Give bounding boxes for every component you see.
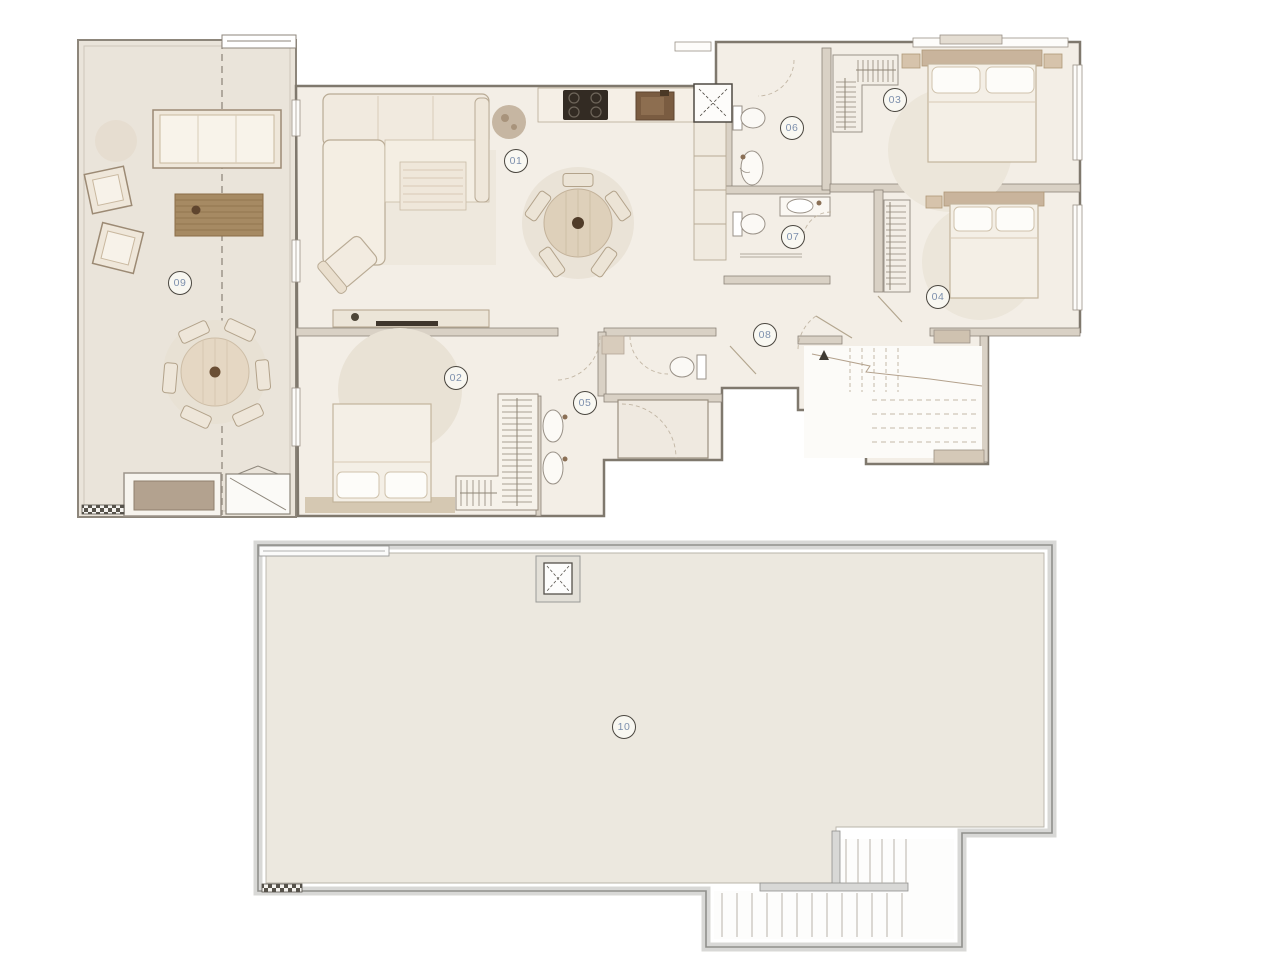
threshold-hatch bbox=[262, 884, 302, 892]
double-bed bbox=[333, 404, 431, 502]
room-label-text: 06 bbox=[786, 122, 799, 134]
tap bbox=[563, 415, 568, 420]
wall bbox=[604, 328, 716, 336]
shaft-box bbox=[602, 336, 624, 354]
room-label-04: 04 bbox=[926, 285, 950, 309]
threshold-cabinet bbox=[934, 330, 970, 343]
double-bed bbox=[950, 204, 1038, 298]
room-label-text: 01 bbox=[510, 155, 523, 167]
room-label-07: 07 bbox=[781, 225, 805, 249]
room-label-06: 06 bbox=[780, 116, 804, 140]
window bbox=[675, 42, 711, 51]
deck-coffee-table bbox=[175, 194, 263, 236]
room-label-text: 08 bbox=[759, 329, 772, 341]
room-label-09: 09 bbox=[168, 271, 192, 295]
sun-lounger bbox=[153, 110, 281, 168]
round-pouf bbox=[95, 120, 137, 162]
storage-room bbox=[618, 400, 708, 458]
tap bbox=[817, 201, 822, 206]
window bbox=[292, 388, 300, 446]
tap bbox=[563, 457, 568, 462]
planter-box bbox=[124, 473, 221, 516]
pillow bbox=[986, 67, 1034, 93]
window bbox=[913, 35, 1068, 47]
room-label-05: 05 bbox=[573, 391, 597, 415]
wall bbox=[760, 883, 908, 891]
toilet bbox=[733, 212, 765, 236]
floorplan-canvas: 01 02 03 04 05 06 07 08 09 10 bbox=[0, 0, 1280, 960]
toilet bbox=[670, 355, 706, 379]
pillow bbox=[932, 67, 980, 93]
plant-glyph bbox=[192, 206, 201, 215]
shaft-skylight bbox=[694, 84, 732, 122]
room-label-01: 01 bbox=[504, 149, 528, 173]
room-label-text: 04 bbox=[932, 291, 945, 303]
faucet bbox=[660, 90, 669, 96]
room-label-text: 09 bbox=[174, 277, 187, 289]
pillow bbox=[996, 207, 1034, 231]
tall-cabinet bbox=[694, 122, 726, 260]
centerpiece bbox=[210, 367, 221, 378]
nightstand bbox=[926, 196, 942, 208]
window bbox=[1073, 205, 1082, 310]
wall bbox=[822, 48, 831, 190]
chair bbox=[162, 362, 178, 393]
main-level-plan bbox=[78, 35, 1082, 517]
roof-level-plan bbox=[258, 545, 1052, 947]
dining-set bbox=[522, 167, 634, 279]
terrace-chair bbox=[84, 166, 131, 213]
double-bed bbox=[928, 64, 1036, 162]
window bbox=[292, 100, 300, 136]
pillow bbox=[954, 207, 992, 231]
tap bbox=[741, 155, 746, 160]
roof-skylight bbox=[536, 556, 580, 602]
pouf bbox=[492, 105, 526, 139]
room-label-text: 10 bbox=[618, 721, 631, 733]
room-label-02: 02 bbox=[444, 366, 468, 390]
wall bbox=[832, 831, 840, 887]
nightstand bbox=[1044, 54, 1062, 68]
window bbox=[1073, 65, 1082, 160]
room-label-text: 07 bbox=[787, 231, 800, 243]
roof-balustrade bbox=[259, 546, 389, 556]
terrace-sliding-door bbox=[222, 35, 296, 48]
wall bbox=[724, 276, 830, 284]
room-label-08: 08 bbox=[753, 323, 777, 347]
threshold-hatch bbox=[82, 505, 124, 514]
roof-floor bbox=[266, 553, 1044, 883]
media-console bbox=[333, 310, 489, 327]
room-label-03: 03 bbox=[883, 88, 907, 112]
nightstand bbox=[902, 54, 920, 68]
room-label-text: 03 bbox=[889, 94, 902, 106]
wall bbox=[798, 336, 842, 344]
room-label-text: 05 bbox=[579, 397, 592, 409]
plant-glyph bbox=[351, 313, 359, 321]
window bbox=[292, 240, 300, 282]
wall bbox=[724, 186, 830, 194]
toilet bbox=[733, 106, 765, 130]
chair bbox=[255, 359, 271, 390]
room-label-10: 10 bbox=[612, 715, 636, 739]
centerpiece bbox=[572, 217, 584, 229]
tv bbox=[376, 321, 438, 326]
wall bbox=[874, 190, 883, 292]
stairwell-main bbox=[804, 346, 984, 463]
terrace-chair bbox=[93, 223, 144, 274]
stair-void bbox=[804, 346, 982, 458]
stair-landing-step bbox=[934, 450, 984, 463]
pillow bbox=[337, 472, 379, 498]
pillow bbox=[385, 472, 427, 498]
throw-blanket bbox=[400, 162, 466, 210]
chair bbox=[563, 174, 593, 187]
kitchen-sink bbox=[636, 90, 674, 120]
room-label-text: 02 bbox=[450, 372, 463, 384]
floorplan-drawing bbox=[0, 0, 1280, 960]
